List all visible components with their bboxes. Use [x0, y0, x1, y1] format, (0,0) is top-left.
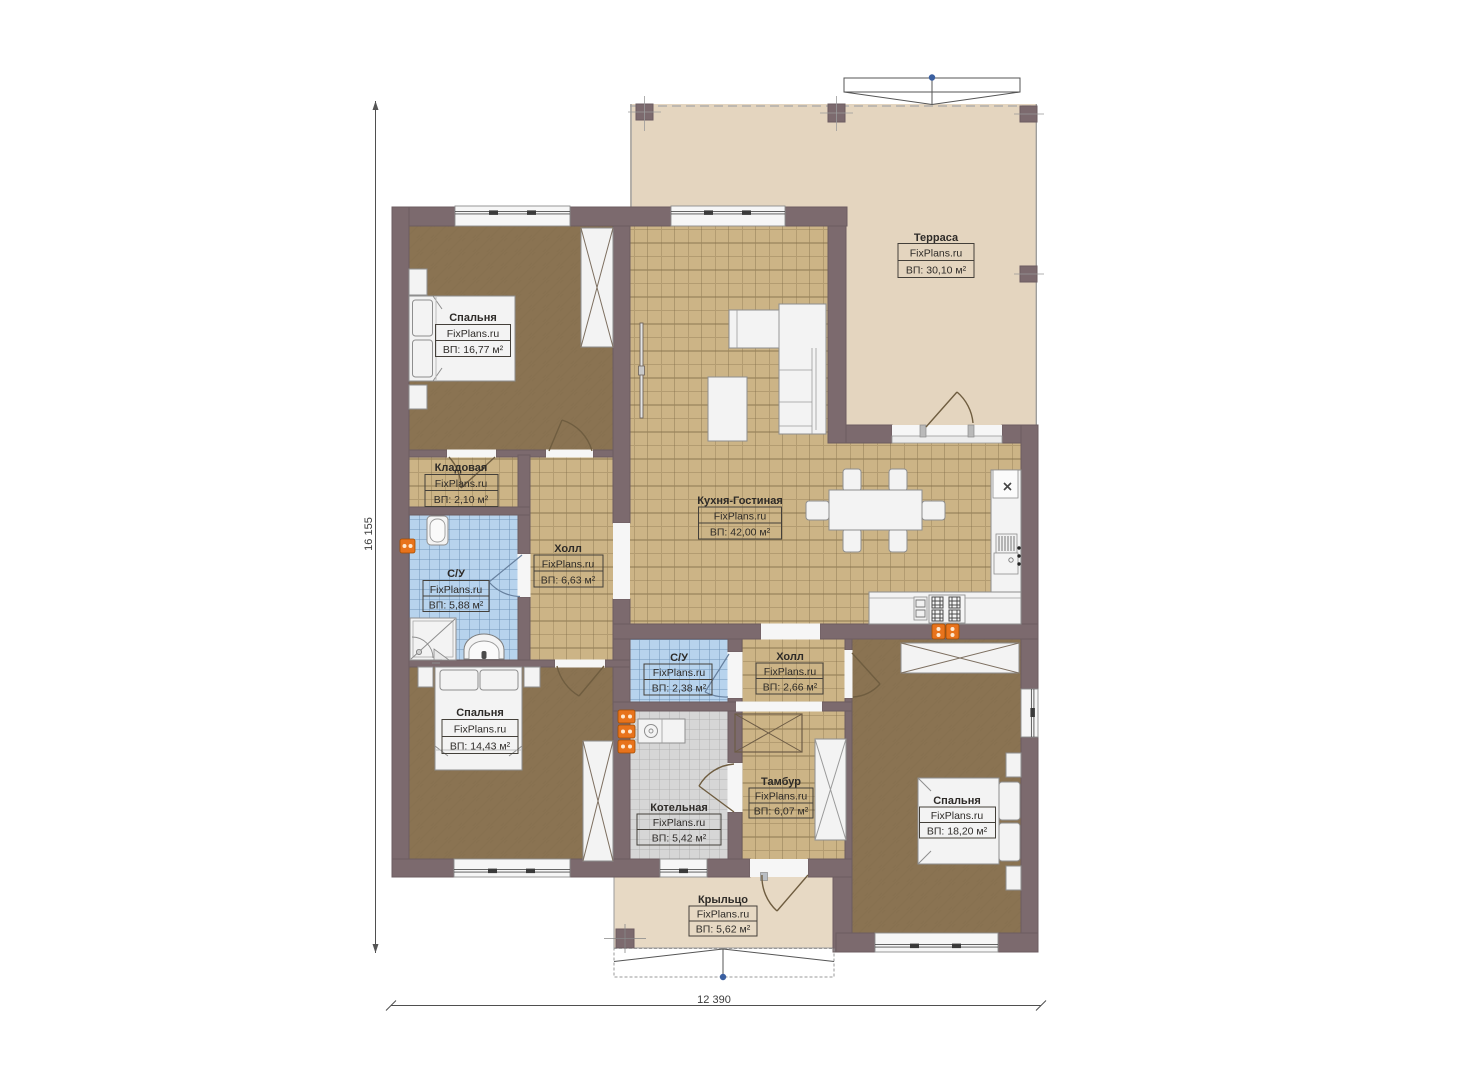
svg-text:16 155: 16 155 [363, 517, 375, 551]
svg-text:FixPlans.ru: FixPlans.ru [454, 724, 507, 736]
svg-text:FixPlans.ru: FixPlans.ru [542, 559, 595, 571]
svg-text:ВП: 5,88 м²: ВП: 5,88 м² [429, 600, 484, 612]
svg-text:ВП: 2,38 м²: ВП: 2,38 м² [652, 683, 707, 695]
svg-text:Кладовая: Кладовая [435, 462, 488, 474]
svg-text:FixPlans.ru: FixPlans.ru [910, 248, 963, 260]
svg-text:Тамбур: Тамбур [761, 776, 801, 788]
svg-text:ВП: 5,62 м²: ВП: 5,62 м² [696, 924, 751, 936]
svg-text:Спальня: Спальня [456, 707, 504, 719]
svg-text:FixPlans.ru: FixPlans.ru [755, 791, 808, 803]
svg-text:ВП: 6,07 м²: ВП: 6,07 м² [754, 806, 809, 818]
svg-text:FixPlans.ru: FixPlans.ru [653, 667, 706, 679]
svg-text:FixPlans.ru: FixPlans.ru [931, 810, 984, 822]
svg-text:FixPlans.ru: FixPlans.ru [447, 328, 500, 340]
svg-text:Терраса: Терраса [914, 232, 959, 244]
svg-text:Спальня: Спальня [933, 795, 981, 807]
svg-text:FixPlans.ru: FixPlans.ru [697, 909, 750, 921]
svg-text:FixPlans.ru: FixPlans.ru [764, 666, 817, 678]
svg-text:ВП: 2,10 м²: ВП: 2,10 м² [434, 494, 489, 506]
svg-text:12 390: 12 390 [697, 994, 731, 1006]
svg-text:ВП: 14,43 м²: ВП: 14,43 м² [450, 741, 511, 753]
svg-text:Крыльцо: Крыльцо [698, 894, 748, 906]
svg-text:Котельная: Котельная [650, 802, 708, 814]
svg-text:FixPlans.ru: FixPlans.ru [714, 511, 767, 523]
svg-text:Холл: Холл [776, 651, 804, 663]
svg-text:С/У: С/У [447, 568, 465, 580]
svg-text:ВП: 30,10 м²: ВП: 30,10 м² [906, 265, 967, 277]
svg-text:Холл: Холл [554, 543, 582, 555]
svg-text:Спальня: Спальня [449, 312, 497, 324]
svg-text:ВП: 6,63 м²: ВП: 6,63 м² [541, 575, 596, 587]
svg-text:ВП: 18,20 м²: ВП: 18,20 м² [927, 826, 988, 838]
svg-text:ВП: 5,42 м²: ВП: 5,42 м² [652, 833, 707, 845]
svg-text:С/У: С/У [670, 652, 688, 664]
svg-text:ВП: 16,77 м²: ВП: 16,77 м² [443, 344, 504, 356]
svg-text:Кухня-Гостиная: Кухня-Гостиная [697, 495, 783, 507]
svg-text:FixPlans.ru: FixPlans.ru [430, 584, 483, 596]
svg-text:FixPlans.ru: FixPlans.ru [653, 817, 706, 829]
svg-text:ВП: 2,66 м²: ВП: 2,66 м² [763, 682, 818, 694]
svg-text:ВП: 42,00 м²: ВП: 42,00 м² [710, 527, 771, 539]
svg-text:FixPlans.ru: FixPlans.ru [435, 478, 488, 490]
